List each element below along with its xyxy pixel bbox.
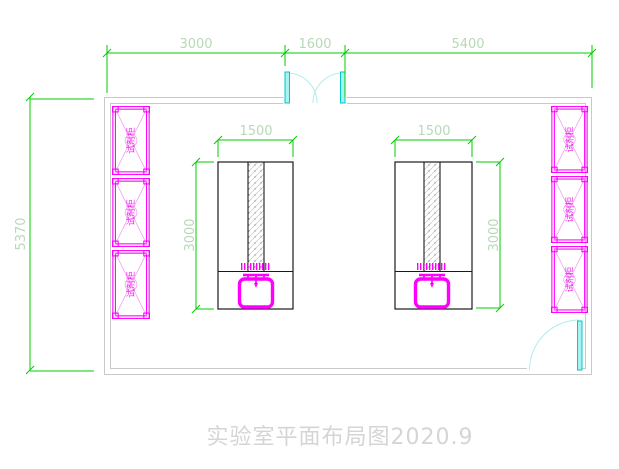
lab-bench-right — [395, 162, 472, 309]
bench-shelf-strip — [248, 163, 264, 271]
dim-label-bench-width: 1500 — [239, 124, 272, 139]
bottom-door-opening — [527, 359, 581, 374]
door-leaf — [578, 321, 583, 370]
left-cabinet-column — [112, 106, 149, 319]
top-dimension: 3000 1600 5400 — [103, 37, 596, 97]
dim-label-door-bay: 1600 — [298, 37, 331, 52]
dim-label-right-bay: 5400 — [451, 37, 484, 52]
dim-label-room-height: 5370 — [14, 217, 29, 250]
cad-drawing-area: 试剂柜 — [0, 0, 619, 469]
bench-shelf-strip — [424, 163, 440, 271]
sink-symbol — [240, 267, 273, 308]
dim-label-bench-depth: 3000 — [487, 218, 502, 251]
reagent-cabinet — [112, 106, 149, 175]
drawing-title: 实验室平面布局图2020.9 — [207, 425, 474, 450]
room-walls — [105, 94, 592, 375]
lab-bench-left — [218, 162, 293, 309]
dim-label-bench-depth: 3000 — [183, 218, 198, 251]
right-cabinet-column — [551, 106, 587, 313]
door-leaf — [285, 72, 290, 103]
reagent-cabinet — [551, 176, 587, 243]
sink-symbol — [416, 267, 449, 308]
floor-plan: 试剂柜 — [0, 0, 619, 469]
reagent-cabinet — [112, 178, 149, 247]
top-door-opening — [284, 94, 347, 107]
reagent-cabinet — [112, 250, 149, 319]
dim-label-left-bay: 3000 — [179, 37, 212, 52]
left-dimension: 5370 — [14, 93, 94, 374]
reagent-cabinet — [551, 106, 587, 173]
door-leaf — [341, 72, 346, 103]
dim-label-bench-width: 1500 — [417, 124, 450, 139]
reagent-cabinet — [551, 246, 587, 313]
